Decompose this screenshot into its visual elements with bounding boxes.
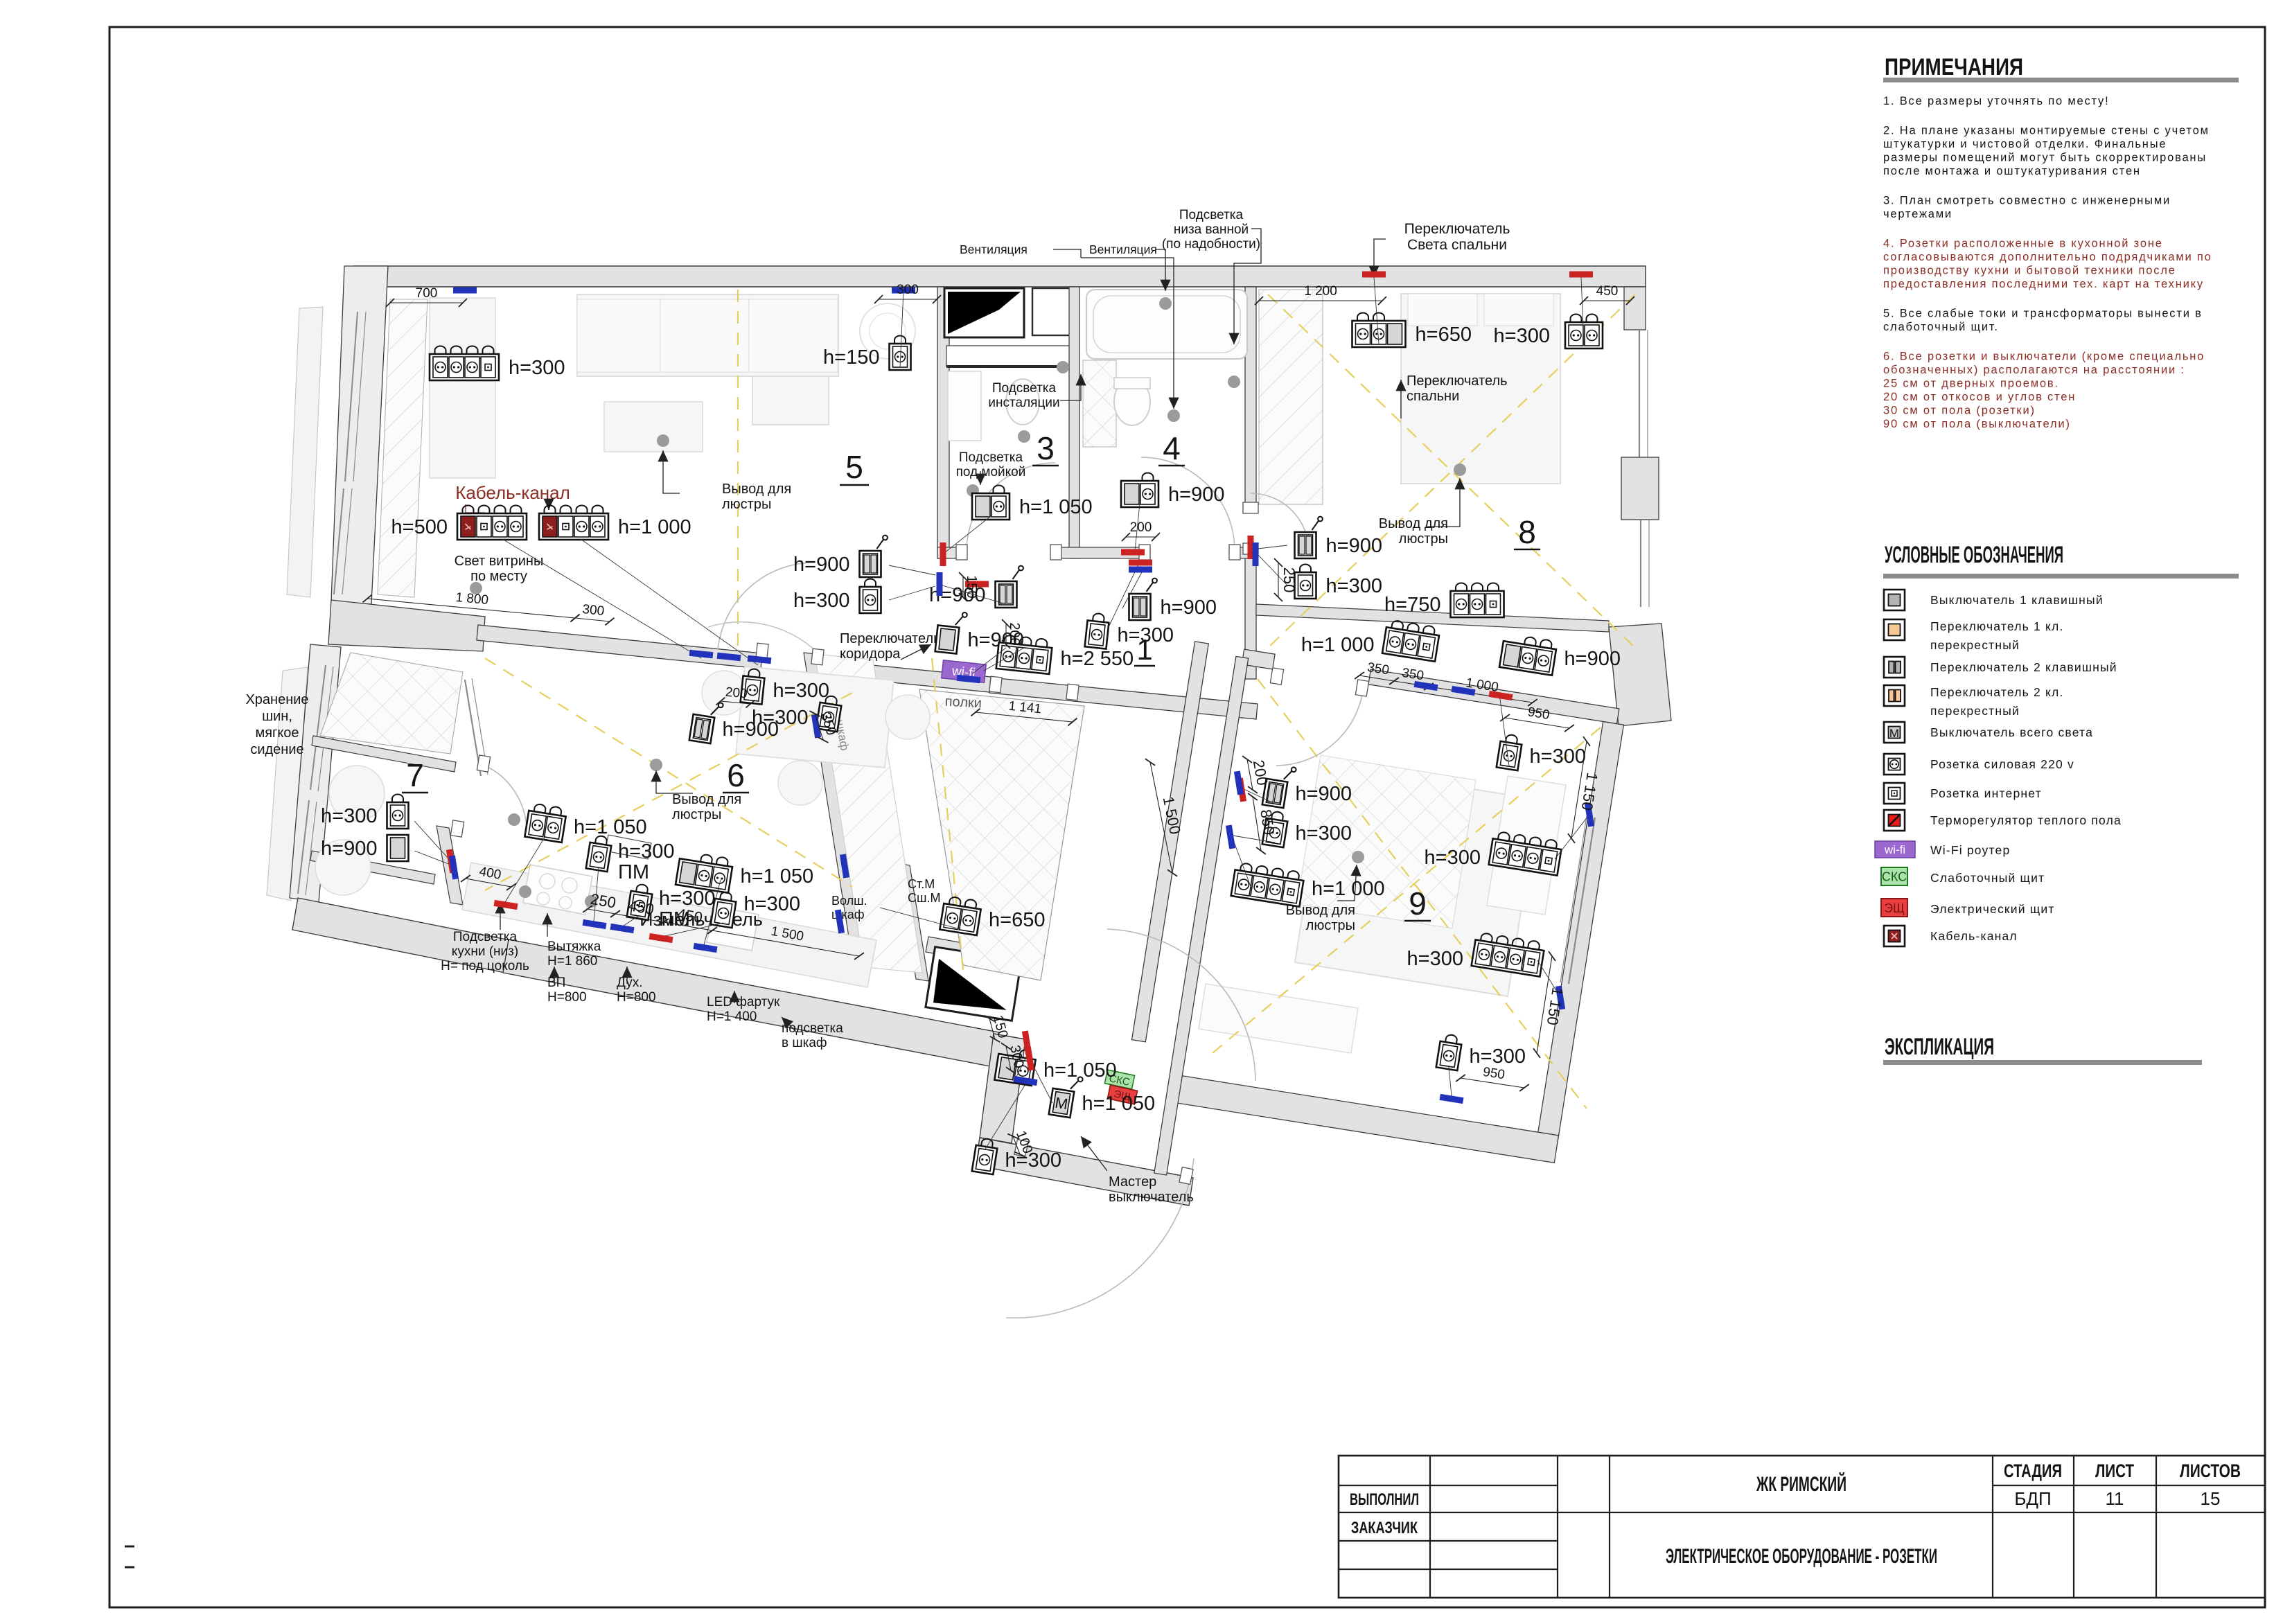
svg-text:2. На плане указаны монтируемы: 2. На плане указаны монтируемые стены с …	[1883, 125, 2210, 137]
svg-text:30 см от пола (розетки): 30 см от пола (розетки)	[1883, 405, 2036, 417]
svg-text:Выключатель 1 клавишный: Выключатель 1 клавишный	[1930, 593, 2104, 607]
svg-text:СТАДИЯ: СТАДИЯ	[2004, 1460, 2062, 1481]
svg-text:11: 11	[2106, 1488, 2124, 1509]
svg-text:штукатурки и чистовой отделки.: штукатурки и чистовой отделки. Финальные	[1883, 138, 2167, 150]
svg-text:h=300: h=300	[1326, 575, 1382, 597]
svg-text:h=300: h=300	[744, 893, 800, 915]
svg-text:h=300: h=300	[1118, 624, 1174, 646]
svg-text:перекрестный: перекрестный	[1930, 704, 2020, 718]
svg-text:90 см от пола (выключатели): 90 см от пола (выключатели)	[1883, 418, 2071, 430]
svg-text:перекрестный: перекрестный	[1930, 638, 2020, 652]
svg-text:ЭКСПЛИКАЦИЯ: ЭКСПЛИКАЦИЯ	[1885, 1034, 1994, 1060]
svg-text:h=300: h=300	[793, 590, 849, 612]
svg-text:h=300: h=300	[1005, 1149, 1061, 1172]
svg-text:ЗАКАЗЧИК: ЗАКАЗЧИК	[1351, 1519, 1418, 1537]
svg-text:h=1 000: h=1 000	[1301, 634, 1375, 656]
svg-text:h=900: h=900	[1296, 783, 1352, 805]
svg-text:h=900: h=900	[1564, 648, 1621, 670]
svg-text:h=300: h=300	[618, 840, 674, 863]
svg-text:h=1 050: h=1 050	[741, 865, 814, 888]
svg-text:ПРИМЕЧАНИЯ: ПРИМЕЧАНИЯ	[1885, 54, 2023, 80]
svg-text:h=650: h=650	[989, 909, 1045, 931]
svg-text:6: 6	[727, 757, 745, 793]
svg-text:h=900: h=900	[1161, 597, 1217, 619]
svg-text:h=300: h=300	[752, 707, 808, 729]
svg-text:Переключатель 2 кл.: Переключатель 2 кл.	[1930, 685, 2064, 699]
svg-text:h=900: h=900	[1168, 484, 1224, 506]
svg-text:h=900: h=900	[793, 554, 849, 576]
svg-text:ЛИСТ: ЛИСТ	[2095, 1460, 2134, 1481]
svg-text:ПереключательСвета спальни: ПереключательСвета спальни	[1404, 221, 1510, 253]
svg-text:Переключатель 2 клавишный: Переключатель 2 клавишный	[1930, 660, 2117, 674]
svg-text:h=150: h=150	[823, 346, 879, 369]
svg-text:7: 7	[406, 757, 424, 793]
svg-text:5. Все слабые токи и трансформ: 5. Все слабые токи и трансформаторы выне…	[1883, 308, 2203, 320]
svg-text:3. План смотреть совместно с и: 3. План смотреть совместно с инженерными	[1883, 195, 2171, 207]
svg-text:5: 5	[845, 449, 863, 485]
svg-text:слаботочный щит.: слаботочный щит.	[1883, 321, 1999, 333]
svg-text:СКС: СКС	[1882, 870, 1907, 884]
svg-text:Терморегулятор теплого пола: Терморегулятор теплого пола	[1930, 813, 2122, 827]
svg-text:1 800: 1 800	[455, 590, 489, 608]
svg-text:Переключатель 1 кл.: Переключатель 1 кл.	[1930, 619, 2064, 633]
svg-text:Слаботочный щит: Слаботочный щит	[1930, 871, 2045, 885]
svg-text:700: 700	[416, 286, 438, 301]
svg-text:1 200: 1 200	[1304, 284, 1337, 299]
svg-text:ЖК РИМСКИЙ: ЖК РИМСКИЙ	[1756, 1472, 1846, 1496]
svg-text:h=300: h=300	[1530, 745, 1586, 768]
svg-text:h=750: h=750	[1384, 594, 1440, 616]
svg-text:h=300: h=300	[1470, 1045, 1526, 1068]
svg-text:3: 3	[1037, 430, 1055, 466]
svg-text:Wi-Fi роутер: Wi-Fi роутер	[1930, 843, 2010, 857]
svg-text:Выключатель всего света: Выключатель всего света	[1930, 725, 2093, 739]
svg-text:200: 200	[1007, 622, 1022, 645]
svg-text:h=300: h=300	[1407, 948, 1463, 970]
svg-text:20 см от откосов и углов стен: 20 см от откосов и углов стен	[1883, 391, 2076, 403]
svg-text:Вентиляция: Вентиляция	[960, 242, 1028, 256]
svg-text:ВытяжкаH=1 860: ВытяжкаH=1 860	[547, 939, 601, 969]
svg-text:9: 9	[1409, 885, 1427, 921]
svg-text:250: 250	[1280, 567, 1298, 593]
svg-text:ВЫПОЛНИЛ: ВЫПОЛНИЛ	[1350, 1490, 1419, 1509]
svg-text:БДП: БДП	[2014, 1488, 2051, 1509]
svg-text:h=1 050: h=1 050	[1082, 1093, 1156, 1115]
svg-text:ЭЩ: ЭЩ	[1884, 901, 1905, 915]
svg-text:УСЛОВНЫЕ ОБОЗНАЧЕНИЯ: УСЛОВНЫЕ ОБОЗНАЧЕНИЯ	[1885, 542, 2063, 568]
svg-text:300: 300	[897, 283, 919, 297]
svg-text:h=300: h=300	[509, 357, 565, 379]
svg-text:200: 200	[1130, 520, 1152, 535]
svg-text:Розетка силовая 220 v: Розетка силовая 220 v	[1930, 757, 2074, 771]
svg-text:Подсветкапод мойкой: Подсветкапод мойкой	[956, 450, 1026, 479]
svg-text:после монтажа и оштукатуривани: после монтажа и оштукатуривания стен	[1883, 165, 2141, 177]
svg-text:Электрический щит: Электрический щит	[1930, 902, 2055, 916]
svg-text:25 см от дверных проемов.: 25 см от дверных проемов.	[1883, 378, 2059, 390]
svg-text:300: 300	[582, 602, 606, 619]
svg-text:h=300: h=300	[321, 805, 377, 827]
svg-text:полки: полки	[944, 694, 982, 712]
svg-text:h=650: h=650	[1416, 324, 1472, 346]
svg-text:Подсветкакухни (низ)H= под цок: Подсветкакухни (низ)H= под цоколь	[441, 930, 529, 973]
svg-text:Подсветкаинсталяции: Подсветкаинсталяции	[988, 381, 1059, 410]
svg-text:h=300: h=300	[1494, 325, 1550, 347]
svg-text:4: 4	[1163, 430, 1181, 466]
svg-text:200: 200	[725, 685, 748, 702]
svg-text:согласовываются дополнительно: согласовываются дополнительно подрядчика…	[1883, 251, 2212, 263]
svg-text:h=300: h=300	[773, 680, 829, 702]
svg-text:150: 150	[964, 575, 979, 598]
svg-text:h=300: h=300	[1425, 847, 1481, 869]
svg-text:15: 15	[2201, 1488, 2221, 1509]
svg-text:wi-fi: wi-fi	[1884, 843, 1905, 856]
svg-text:h=1 000: h=1 000	[1312, 878, 1385, 900]
svg-text:1. Все размеры уточнять по мес: 1. Все размеры уточнять по месту!	[1883, 95, 2110, 107]
svg-text:h=1 050: h=1 050	[1043, 1059, 1117, 1082]
svg-text:h=900: h=900	[321, 838, 377, 860]
svg-text:размеры помещений могут быть с: размеры помещений могут быть скорректиро…	[1883, 152, 2207, 164]
svg-text:ЛИСТОВ: ЛИСТОВ	[2180, 1460, 2241, 1481]
svg-text:4. Розетки расположенные в кух: 4. Розетки расположенные в кухонной зоне	[1883, 238, 2163, 250]
svg-text:h=2 550: h=2 550	[1061, 648, 1134, 670]
svg-text:h=1 050: h=1 050	[1019, 496, 1093, 518]
svg-text:Вентиляция: Вентиляция	[1089, 242, 1157, 256]
svg-text:ПМ: ПМ	[618, 861, 649, 883]
svg-text:обозначенных) располагаются на: обозначенных) располагаются на расстояни…	[1883, 364, 2185, 376]
svg-text:h=900: h=900	[1326, 535, 1382, 557]
svg-text:производству кухни и бытовой т: производству кухни и бытовой техники пос…	[1883, 265, 2176, 277]
svg-text:M: M	[1889, 727, 1899, 740]
svg-text:Кабель-канал: Кабель-канал	[1930, 929, 2018, 943]
svg-text:ЭЛЕКТРИЧЕСКОЕ ОБОРУДОВАНИЕ - Р: ЭЛЕКТРИЧЕСКОЕ ОБОРУДОВАНИЕ - РОЗЕТКИ	[1666, 1545, 1937, 1568]
svg-text:450: 450	[1596, 284, 1619, 299]
svg-text:чертежами: чертежами	[1883, 208, 1952, 220]
svg-text:h=500: h=500	[391, 516, 448, 538]
svg-text:предоставления последними тех.: предоставления последними тех. карт на т…	[1883, 278, 2204, 290]
svg-text:8: 8	[1518, 514, 1536, 550]
svg-text:h=300: h=300	[1296, 822, 1352, 845]
svg-text:h=1 000: h=1 000	[618, 516, 691, 538]
svg-text:6. Все розетки и выключатели (: 6. Все розетки и выключатели (кроме спец…	[1883, 351, 2205, 363]
svg-text:Розетка интернет: Розетка интернет	[1930, 786, 2042, 800]
svg-text:h=1 050: h=1 050	[574, 816, 647, 838]
svg-text:M: M	[1054, 1094, 1069, 1113]
